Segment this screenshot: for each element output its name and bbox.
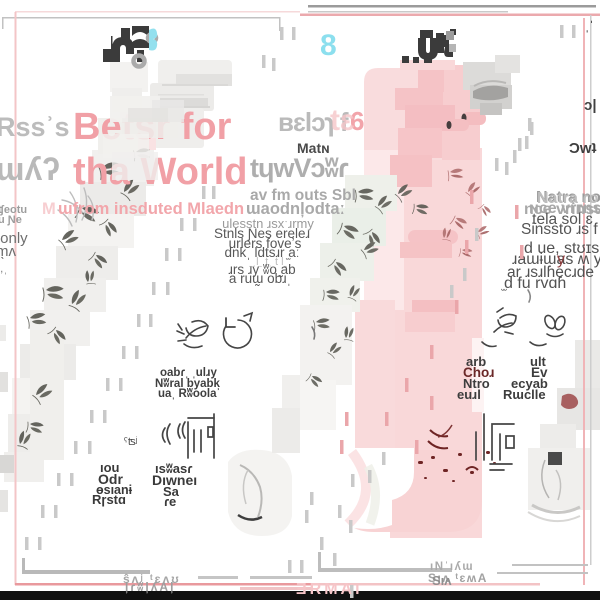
svg-text:M: M [42, 200, 56, 218]
svg-text:m̖ʌ: m̖ʌ [0, 243, 16, 260]
svg-text:Sıʌ: Sıʌ [432, 573, 452, 588]
svg-text:u Ɲe: u Ɲe [0, 214, 22, 226]
svg-text:Rssʾs: Rssʾs [0, 112, 70, 142]
svg-text:y: y [557, 251, 565, 268]
svg-text:ƎRMAı: ƎRMAı [296, 581, 363, 598]
svg-text:ɾe: ɾe [164, 494, 176, 509]
svg-text:ˤʦʲ: ˤʦʲ [124, 436, 138, 448]
svg-text:,ˌ: ,ˌ [0, 261, 7, 275]
svg-text:ļɾʬļʎAļ: ļɾʬļʎAļ [125, 580, 175, 594]
svg-text:Rɯclle: Rɯclle [503, 387, 546, 402]
svg-text:tha World: tha World [73, 151, 248, 193]
svg-text:euɹl: euɹl [457, 387, 481, 402]
svg-text:tɥwVɔʬɾ: tɥwVɔʬɾ [250, 153, 349, 183]
svg-text:tɛ: tɛ [330, 104, 355, 137]
svg-text:Rɼstɑ: Rɼstɑ [92, 492, 126, 507]
svg-text:Matɴ: Matɴ [297, 140, 330, 156]
svg-text:Sinssto ɹs f: Sinssto ɹs f [521, 221, 598, 238]
svg-text:ɯfrom insduted Mlaedn: ɯfrom insduted Mlaedn [58, 200, 244, 218]
svg-text:Ɔwʇ: Ɔwʇ [569, 140, 597, 157]
svg-text:ˌˈ: ˌˈ [585, 18, 594, 33]
svg-text:ɯʎʔ: ɯʎʔ [0, 151, 60, 187]
svg-text:8: 8 [320, 29, 337, 62]
svg-text:̫d fu rvɑɦ: ̫d fu rvɑɦ [501, 275, 566, 292]
svg-text:ɔ|: ɔ| [584, 97, 597, 114]
svg-text:uaˌ Rʬoolaʾ: uaˌ Rʬoolaʾ [158, 388, 220, 400]
svg-text:a ruɯ̰ obɹˌ: a ruɯ̰ obɹˌ [229, 271, 291, 286]
